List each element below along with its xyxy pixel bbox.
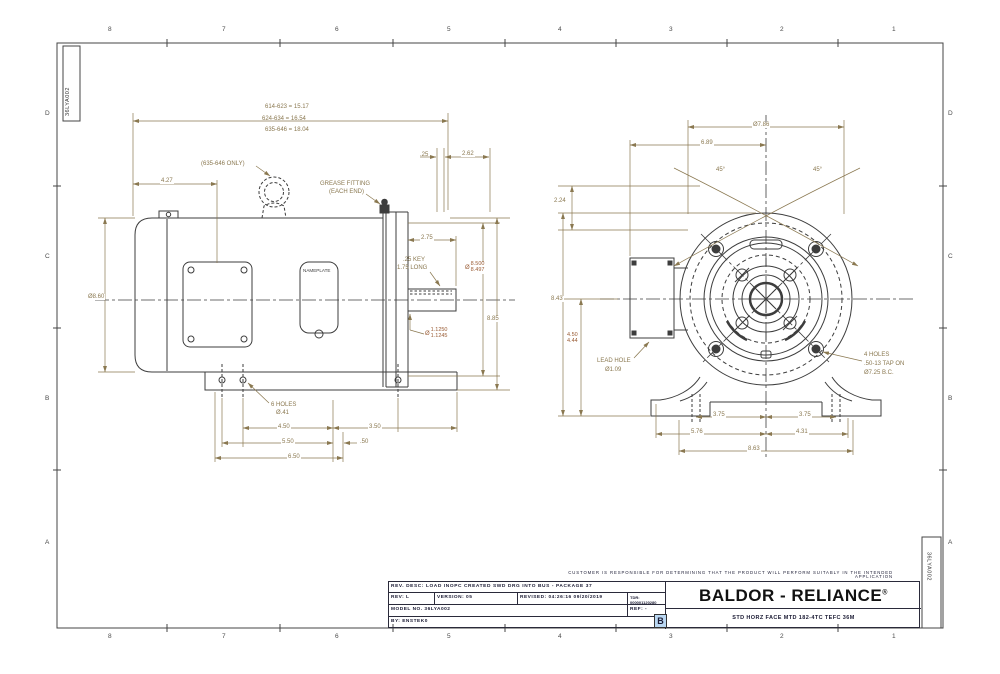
zone-col-top-5: 5 <box>447 27 451 34</box>
note-6holes-1: 6 HOLES <box>271 402 296 408</box>
dim-431: 4.31 <box>795 429 809 435</box>
sheet-size-marker: B <box>654 614 667 628</box>
tdr-cell: TDR: 000001120280 <box>628 593 666 605</box>
dim-224: 2.24 <box>554 198 566 204</box>
part-number-box-bottom-right: 36LYA002 <box>925 552 931 622</box>
version-cell: VERSION: 05 <box>435 593 518 605</box>
zone-col-top-3: 3 <box>669 27 673 34</box>
note-lead-hole-2: Ø1.09 <box>605 367 621 373</box>
by-cell: BY: ENSTEK0 <box>389 617 666 629</box>
zone-row-right-a: A <box>948 540 952 547</box>
side-view-dimensions <box>98 113 510 462</box>
zone-col-top-6: 6 <box>335 27 339 34</box>
zone-row-right-b: B <box>948 396 952 403</box>
note-tap-3: Ø7.25 B.C. <box>864 370 894 376</box>
note-key-2: 1.75 LONG <box>397 265 427 271</box>
note-grease-2: (EACH END) <box>329 189 364 195</box>
dim-dia-body: Ø8.60 <box>87 294 105 300</box>
dim-shaft-height: 4.504.44 <box>566 333 579 345</box>
brand-cell: BALDOR - RELIANCE® <box>666 582 921 609</box>
rev-desc-cell: REV. DESC: LOAD INOPC CREATED SWD DRG IN… <box>389 582 666 593</box>
revised-cell: REVISED: 04:26:16 09/20/2019 <box>518 593 628 605</box>
note-tap-2: .50-13 TAP ON <box>864 361 904 367</box>
dim-427: 4.27 <box>160 178 174 184</box>
zone-col-bottom-5: 5 <box>447 634 451 641</box>
dim-450: 4.50 <box>277 424 291 430</box>
note-6holes-2: Ø.41 <box>276 410 289 416</box>
zone-row-right-d: D <box>948 111 953 118</box>
dim-550: 5.50 <box>281 439 295 445</box>
zone-row-left-c: C <box>45 254 50 261</box>
dim-689: 6.89 <box>700 140 714 146</box>
zone-col-top-7: 7 <box>222 27 226 34</box>
drawing-sheet: 8 7 6 5 4 3 2 1 8 7 6 5 4 3 2 1 D C B A … <box>0 0 1000 674</box>
dim-25: .25 <box>420 152 428 158</box>
dim-375-right: 3.75 <box>798 412 812 418</box>
part-number-box-top-left: 36LYA002 <box>66 56 72 116</box>
zone-col-bottom-6: 6 <box>335 634 339 641</box>
dim-length-634: 624-634 = 16.54 <box>262 116 306 122</box>
brand-name: BALDOR - RELIANCE <box>699 586 882 605</box>
dim-843: 8.43 <box>550 296 564 302</box>
disclaimer-text: CUSTOMER IS RESPONSIBLE FOR DETERMINING … <box>543 571 893 580</box>
diameter-symbol: Ø <box>465 265 470 271</box>
dim-050: .50 <box>360 439 368 445</box>
diameter-symbol: Ø <box>425 331 430 337</box>
registered-mark: ® <box>882 590 888 597</box>
dim-shaft-lower: 1.1245 <box>431 334 448 340</box>
dim-262: 2.62 <box>461 151 475 157</box>
note-eyebolt: (635-646 ONLY) <box>201 161 245 167</box>
dim-face-diameter: Ø 8.5008.497 <box>464 262 485 274</box>
zone-col-top-2: 2 <box>780 27 784 34</box>
dim-863: 8.63 <box>747 446 761 452</box>
title-block: REV. DESC: LOAD INOPC CREATED SWD DRG IN… <box>388 581 920 628</box>
dim-dia-outer: Ø7.86 <box>752 122 770 128</box>
zone-row-left-d: D <box>45 111 50 118</box>
dim-d-lower: 4.44 <box>567 339 578 345</box>
zone-col-top-8: 8 <box>108 27 112 34</box>
dim-275: 2.75 <box>420 235 434 241</box>
dim-height: 8.85 <box>486 316 500 322</box>
dim-350: 3.50 <box>368 424 382 430</box>
dim-650: 6.50 <box>287 454 301 460</box>
angle-45-left: 45° <box>715 167 726 173</box>
product-description: STD HORZ FACE MTD 182-4TC TEFC 36M <box>666 609 921 629</box>
side-view-geometry <box>95 177 515 398</box>
zone-col-bottom-7: 7 <box>222 634 226 641</box>
note-grease-1: GREASE FITTING <box>320 181 370 187</box>
dim-length-623: 614-623 = 15.17 <box>265 104 309 110</box>
zone-col-top-1: 1 <box>892 27 896 34</box>
zone-col-bottom-4: 4 <box>558 634 562 641</box>
rev-cell: REV: L <box>389 593 435 605</box>
zone-row-left-b: B <box>45 396 49 403</box>
front-view-geometry <box>600 115 915 458</box>
model-no-cell: MODEL NO. 36LYA002 <box>389 605 628 617</box>
zone-col-bottom-2: 2 <box>780 634 784 641</box>
zone-col-bottom-3: 3 <box>669 634 673 641</box>
note-key-1: .25 KEY <box>403 257 425 263</box>
note-tap-1: 4 HOLES <box>864 352 889 358</box>
angle-45-right: 45° <box>812 167 823 173</box>
zone-col-bottom-1: 1 <box>892 634 896 641</box>
zone-col-top-4: 4 <box>558 27 562 34</box>
zone-row-left-a: A <box>45 540 49 547</box>
note-lead-hole-1: LEAD HOLE <box>597 358 631 364</box>
dim-length-646: 635-646 = 18.04 <box>265 127 309 133</box>
sheet-frame <box>53 39 947 632</box>
nameplate-label: NAMEPLATE <box>303 269 330 274</box>
zone-col-bottom-8: 8 <box>108 634 112 641</box>
dim-shaft-diameter: Ø 1.12501.1245 <box>424 328 449 340</box>
zone-row-right-c: C <box>948 254 953 261</box>
dim-375-left: 3.75 <box>712 412 726 418</box>
dim-576: 5.76 <box>690 429 704 435</box>
dim-face-lower: 8.497 <box>471 268 485 274</box>
